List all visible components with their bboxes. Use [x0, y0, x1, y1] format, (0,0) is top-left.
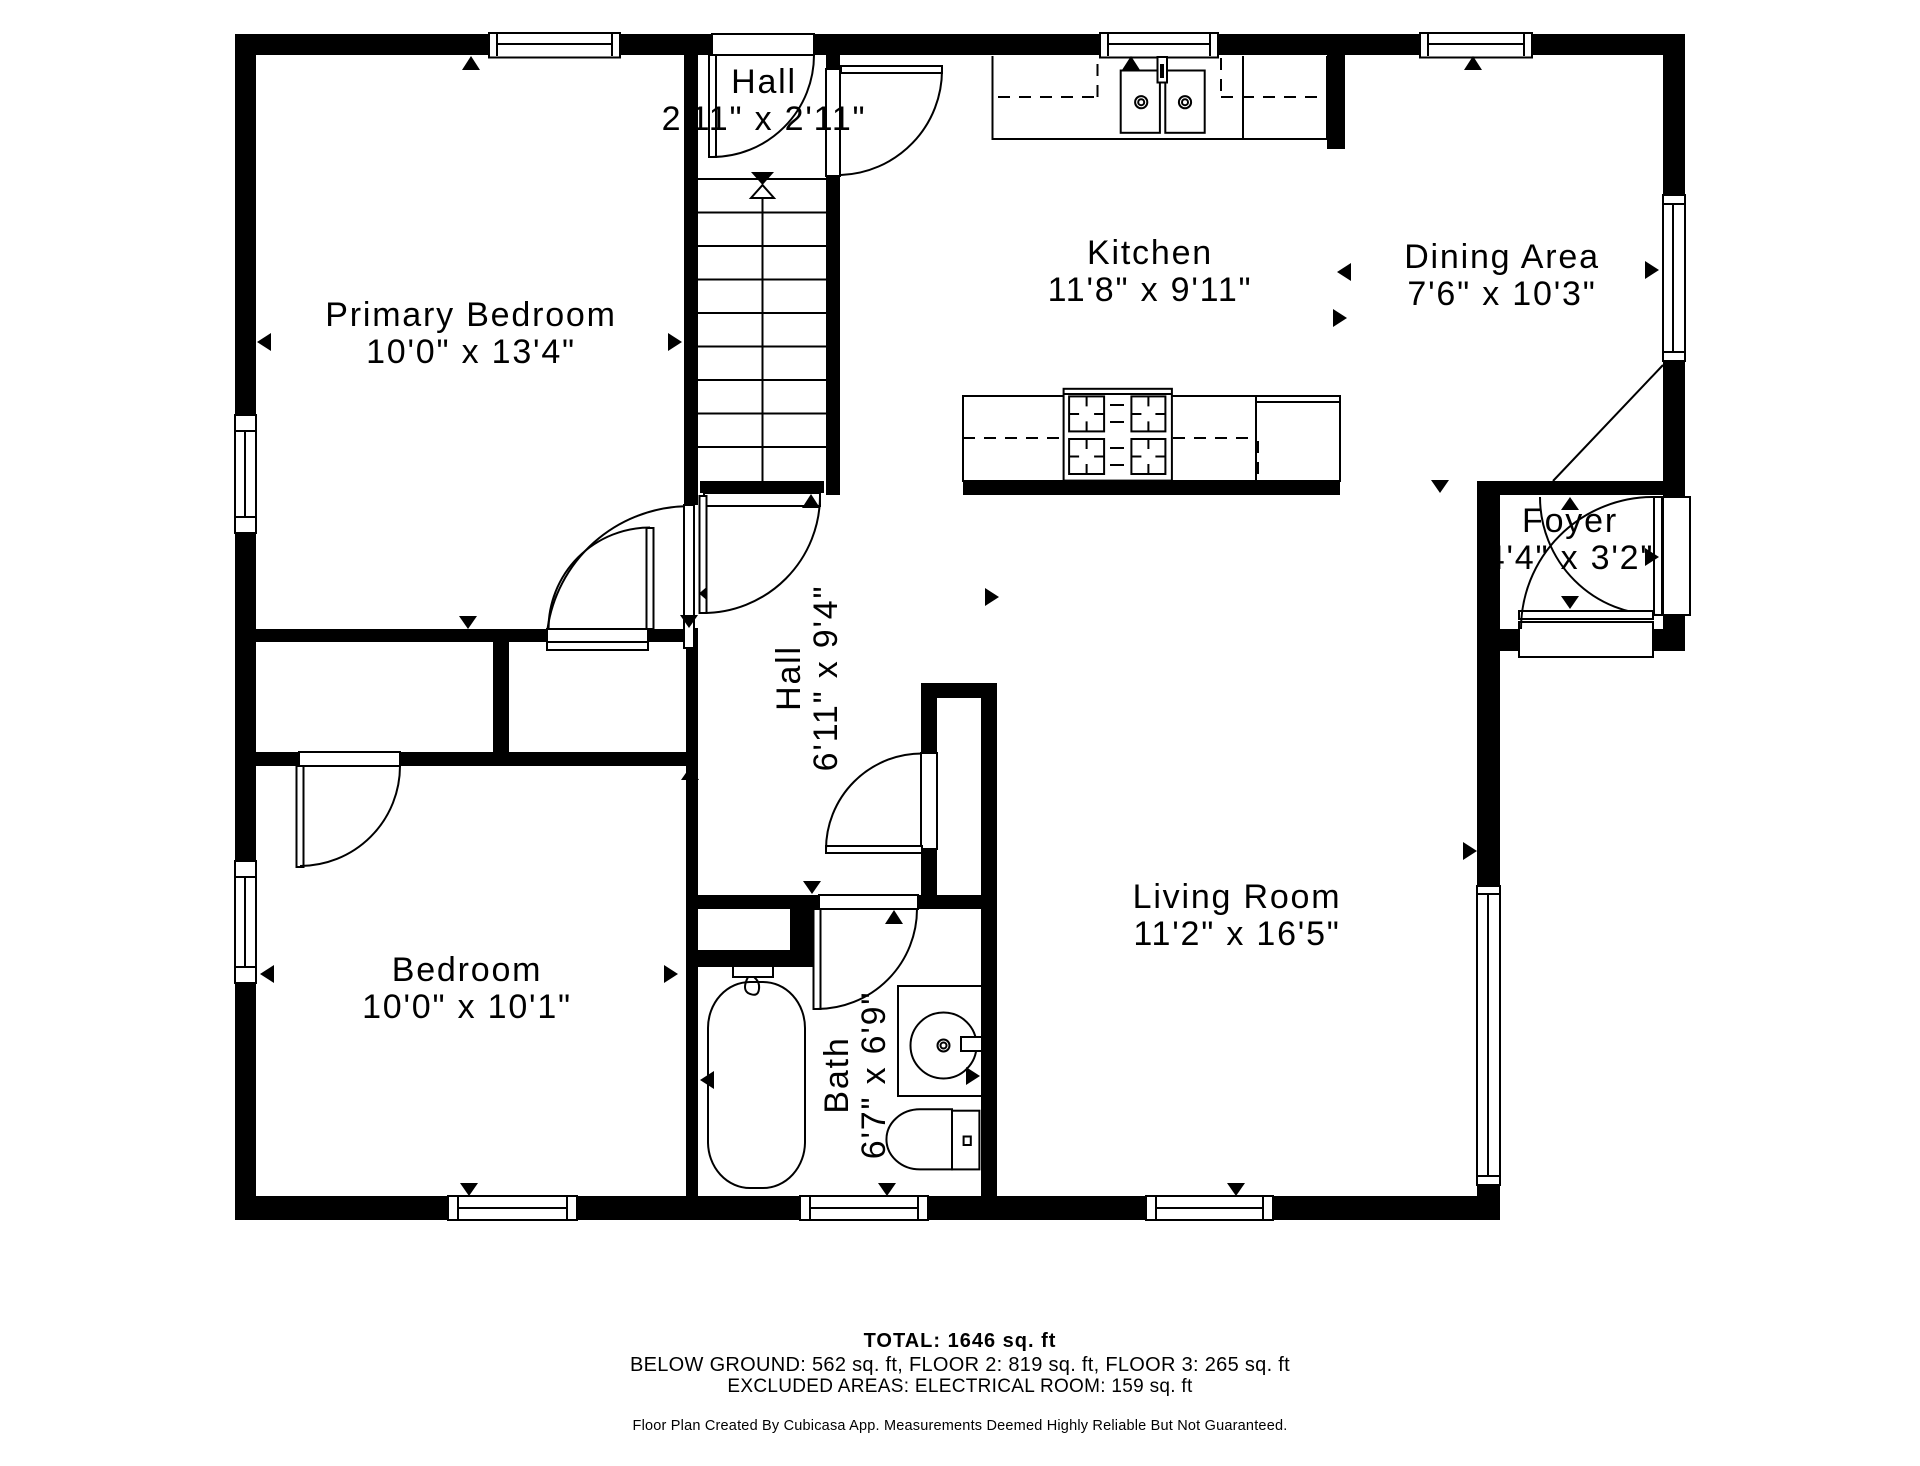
svg-text:Kitchen: Kitchen [1087, 234, 1213, 272]
svg-text:10'0" x 10'1": 10'0" x 10'1" [362, 988, 572, 1026]
svg-text:Floor Plan Created By Cubicasa: Floor Plan Created By Cubicasa App. Meas… [633, 1418, 1288, 1434]
svg-text:EXCLUDED AREAS: ELECTRICAL ROO: EXCLUDED AREAS: ELECTRICAL ROOM: 159 sq.… [727, 1376, 1193, 1397]
svg-text:10'0" x 13'4": 10'0" x 13'4" [366, 333, 576, 371]
svg-text:11'2" x 16'5": 11'2" x 16'5" [1133, 915, 1340, 953]
svg-text:2'11" x 2'11": 2'11" x 2'11" [662, 100, 867, 138]
svg-text:TOTAL: 1646 sq. ft: TOTAL: 1646 sq. ft [864, 1330, 1057, 1352]
svg-text:6'11" x 9'4": 6'11" x 9'4" [807, 585, 845, 772]
svg-text:Bedroom: Bedroom [392, 951, 543, 989]
svg-text:BELOW GROUND: 562 sq. ft, FLOO: BELOW GROUND: 562 sq. ft, FLOOR 2: 819 s… [630, 1354, 1290, 1376]
svg-text:11'8" x 9'11": 11'8" x 9'11" [1048, 271, 1253, 309]
svg-text:Primary Bedroom: Primary Bedroom [325, 296, 617, 334]
svg-text:7'6" x 10'3": 7'6" x 10'3" [1407, 275, 1596, 313]
svg-text:Foyer: Foyer [1522, 502, 1618, 540]
svg-text:Hall: Hall [731, 63, 797, 101]
svg-text:Hall: Hall [770, 645, 808, 711]
svg-text:4'4" x 3'2": 4'4" x 3'2" [1486, 539, 1654, 577]
svg-text:Bath: Bath [818, 1036, 856, 1113]
svg-text:Living Room: Living Room [1133, 878, 1342, 916]
svg-text:Dining Area: Dining Area [1404, 238, 1600, 276]
svg-text:6'7" x 6'9": 6'7" x 6'9" [855, 991, 893, 1159]
